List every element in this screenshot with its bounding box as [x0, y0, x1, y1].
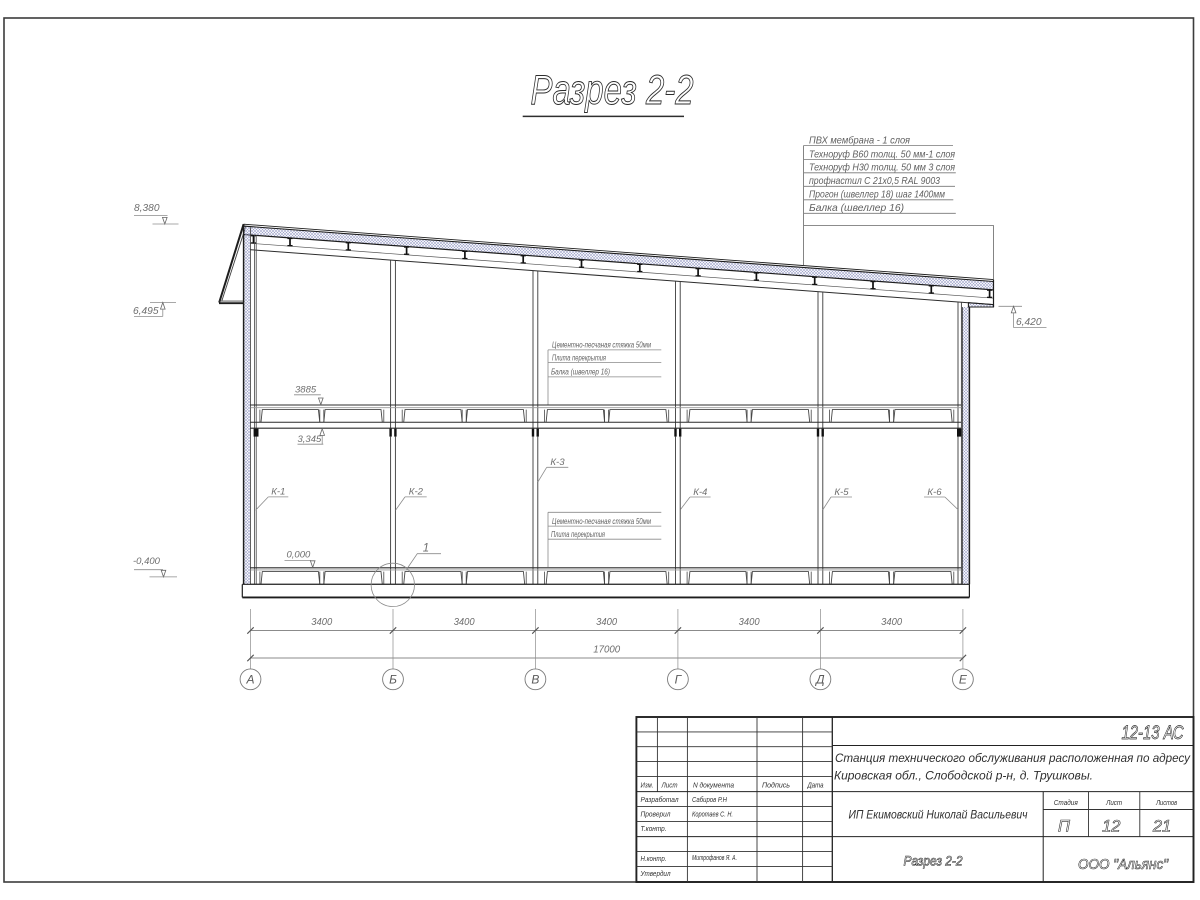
- svg-text:Кировская обл., Слободской р-н: Кировская обл., Слободской р-н, д. Трушк…: [834, 771, 1093, 783]
- svg-text:Цементно-песчаная стяжка 50мм: Цементно-песчаная стяжка 50мм: [552, 340, 651, 350]
- svg-text:Проверил: Проверил: [641, 810, 672, 819]
- svg-text:12-13 АС: 12-13 АС: [1122, 722, 1185, 744]
- svg-text:Дата: Дата: [807, 783, 824, 790]
- svg-text:Разработал: Разработал: [641, 795, 680, 804]
- svg-text:Коротаев С. Н.: Коротаев С. Н.: [692, 810, 733, 819]
- svg-text:Разрез 2-2: Разрез 2-2: [904, 854, 963, 869]
- svg-text:Плита перекрытия: Плита перекрытия: [552, 352, 606, 362]
- svg-text:В: В: [531, 673, 539, 687]
- svg-text:П: П: [1058, 818, 1070, 836]
- svg-text:Е: Е: [959, 673, 968, 687]
- svg-text:Цементно-песчаная стяжка 50мм: Цементно-песчаная стяжка 50мм: [552, 516, 651, 526]
- svg-text:К-1: К-1: [271, 487, 285, 498]
- svg-text:Балка (швеллер 16): Балка (швеллер 16): [809, 203, 904, 214]
- svg-text:Лист: Лист: [661, 783, 678, 790]
- svg-text:К-5: К-5: [834, 487, 849, 498]
- svg-text:3400: 3400: [596, 617, 617, 628]
- svg-text:Стадия: Стадия: [1054, 799, 1078, 807]
- svg-text:К-6: К-6: [927, 487, 942, 498]
- svg-text:К-4: К-4: [693, 487, 707, 498]
- svg-text:17000: 17000: [593, 645, 620, 656]
- svg-text:Д: Д: [814, 673, 825, 687]
- svg-text:Утвердил: Утвердил: [640, 869, 671, 878]
- svg-text:21: 21: [1152, 818, 1171, 836]
- svg-text:-0,400: -0,400: [133, 556, 161, 567]
- svg-text:3400: 3400: [739, 617, 760, 628]
- svg-text:3400: 3400: [881, 617, 902, 628]
- svg-text:Плита перекрытия: Плита перекрытия: [551, 529, 605, 539]
- svg-text:Изм.: Изм.: [641, 783, 654, 790]
- svg-text:12: 12: [1102, 818, 1120, 836]
- svg-text:Н.контр.: Н.контр.: [641, 854, 667, 863]
- svg-text:3400: 3400: [454, 617, 475, 628]
- svg-text:Станция технического обслужива: Станция технического обслуживания распол…: [835, 753, 1191, 765]
- svg-text:Митрофанов Я. А.: Митрофанов Я. А.: [692, 853, 737, 862]
- svg-text:Листов: Листов: [1155, 800, 1177, 807]
- svg-text:Лист: Лист: [1105, 800, 1122, 807]
- svg-text:3400: 3400: [311, 617, 332, 628]
- svg-text:ООО "Альянс": ООО "Альянс": [1078, 856, 1169, 873]
- svg-text:К-3: К-3: [550, 457, 565, 468]
- svg-text:ПВХ мембрана - 1 слоя: ПВХ мембрана - 1 слоя: [809, 134, 910, 146]
- svg-text:Разрез 2-2: Разрез 2-2: [531, 66, 694, 113]
- svg-text:3,345: 3,345: [298, 434, 322, 445]
- svg-text:А: А: [245, 673, 254, 687]
- svg-text:Прогон (швеллер 18) шаг 1400мм: Прогон (швеллер 18) шаг 1400мм: [809, 190, 945, 201]
- svg-text:3885: 3885: [295, 385, 317, 396]
- svg-text:К-2: К-2: [409, 487, 424, 498]
- svg-text:Техноруф В60 толщ. 50 мм-1 сло: Техноруф В60 толщ. 50 мм-1 слоя: [809, 148, 955, 160]
- svg-text:6,495: 6,495: [133, 306, 159, 317]
- svg-text:Балка (швеллер 16): Балка (швеллер 16): [551, 367, 610, 377]
- svg-text:1: 1: [423, 543, 429, 555]
- svg-text:Подпись: Подпись: [762, 782, 790, 790]
- svg-text:N документа: N документа: [693, 782, 734, 790]
- svg-text:6,420: 6,420: [1016, 317, 1042, 328]
- svg-text:профнастил С 21х0,5 RAL 9003: профнастил С 21х0,5 RAL 9003: [809, 175, 940, 187]
- svg-text:Б: Б: [389, 673, 397, 687]
- svg-text:Техноруф Н30 толщ. 50 мм 3 сло: Техноруф Н30 толщ. 50 мм 3 слоя: [809, 162, 955, 174]
- svg-text:0,000: 0,000: [287, 550, 311, 561]
- svg-text:Сабиров Р.Н: Сабиров Р.Н: [692, 795, 727, 804]
- svg-text:ИП Екимовский Николай Васильев: ИП Екимовский Николай Васильевич: [849, 810, 1028, 822]
- svg-text:Т.контр.: Т.контр.: [641, 824, 667, 833]
- svg-text:8,380: 8,380: [134, 203, 160, 214]
